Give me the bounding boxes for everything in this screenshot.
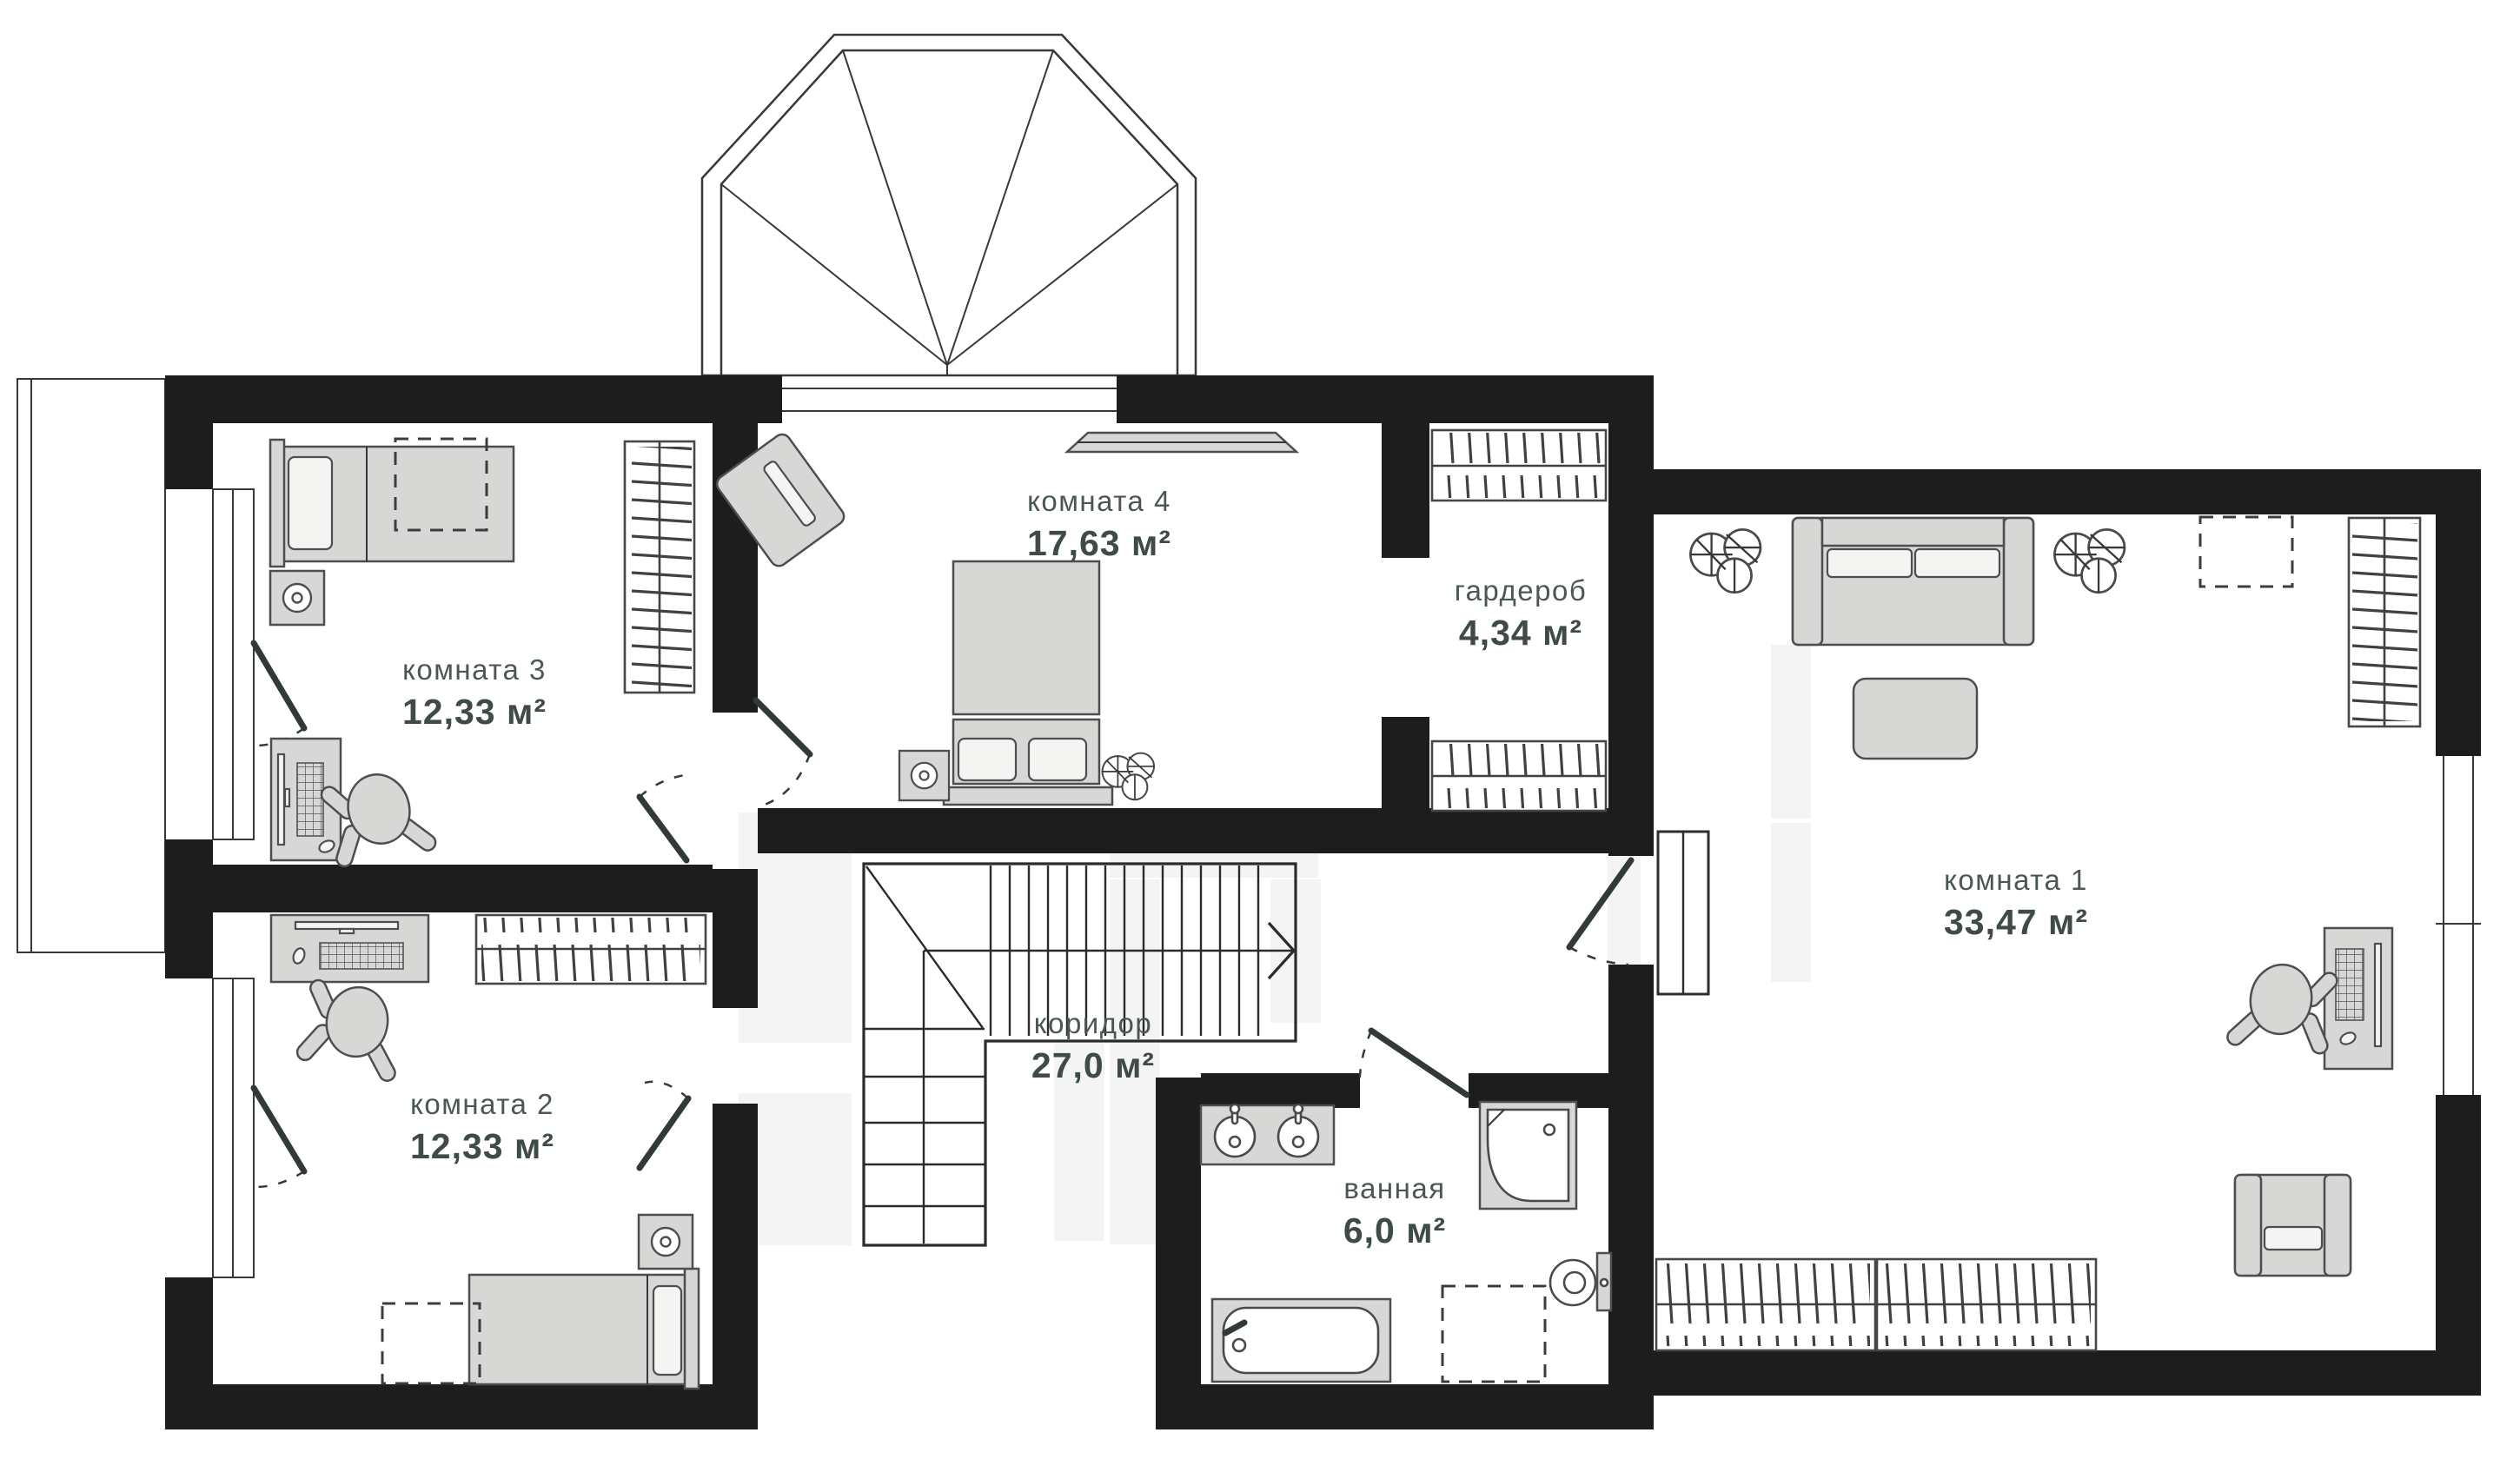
room-name: комната 3 <box>402 652 547 689</box>
plant-icon <box>2054 529 2125 592</box>
door-swing-icon <box>640 775 686 860</box>
room-area: 17,63 м² <box>1027 521 1171 567</box>
floor-plan: комната 4 17,63 м² гардероб 4,34 м² комн… <box>0 0 2520 1479</box>
room-area: 12,33 м² <box>402 689 547 735</box>
room-area: 27,0 м² <box>1031 1043 1155 1089</box>
double-bed-icon <box>944 561 1112 805</box>
single-bed-icon <box>270 439 514 567</box>
room-name: комната 4 <box>1027 483 1171 521</box>
office-chair-icon <box>291 975 412 1085</box>
sofa-icon <box>1793 518 2033 645</box>
desk-icon <box>2324 928 2392 1069</box>
door-swing-icon <box>254 1088 304 1187</box>
window-icon <box>213 489 254 839</box>
wall-niche-icon <box>1658 832 1708 994</box>
door-swing-icon <box>756 700 810 806</box>
room-name: гардероб <box>1455 573 1587 610</box>
double-sink-icon <box>1201 1104 1334 1164</box>
room-area: 12,33 м² <box>410 1124 554 1170</box>
door-swing-icon <box>254 643 304 746</box>
room-name: комната 2 <box>410 1086 554 1124</box>
coffee-table-icon <box>1854 679 1977 759</box>
armchair-icon <box>2235 1175 2351 1276</box>
bay-window <box>702 35 1196 375</box>
desk-icon <box>271 915 428 982</box>
room-label-komnata-4: комната 4 17,63 м² <box>1027 483 1171 567</box>
door-swing-icon <box>1360 1031 1467 1095</box>
door-swing-icon <box>640 1082 688 1168</box>
wardrobe-rail-icon <box>625 441 694 693</box>
window-icon <box>213 978 254 1277</box>
room-label-komnata-3: комната 3 12,33 м² <box>402 652 547 735</box>
wardrobe-rail-icon <box>1656 1259 1875 1350</box>
room-name: ванная <box>1343 1171 1446 1208</box>
nightstand-lamp-icon <box>639 1215 693 1269</box>
room-area: 33,47 м² <box>1944 899 2088 945</box>
room-label-komnata-2: комната 2 12,33 м² <box>410 1086 554 1170</box>
room-label-garderob: гардероб 4,34 м² <box>1455 573 1587 656</box>
room-area: 4,34 м² <box>1455 610 1587 656</box>
nightstand-lamp-icon <box>899 751 949 800</box>
room-name: комната 1 <box>1944 862 2088 899</box>
wardrobe-rail-icon <box>476 915 706 984</box>
balcony <box>17 379 165 952</box>
nightstand-lamp-icon <box>270 571 324 625</box>
floor-plan-canvas <box>0 0 2520 1479</box>
room-area: 6,0 м² <box>1343 1208 1446 1254</box>
room-label-komnata-1: комната 1 33,47 м² <box>1944 862 2088 945</box>
appliance-placeholder-dashed <box>2200 517 2292 587</box>
window-icon <box>782 388 1117 411</box>
wardrobe-rail-icon <box>1432 430 1606 501</box>
window-icon <box>2436 756 2481 1095</box>
single-bed-icon <box>382 1269 699 1389</box>
wardrobe-rail-icon <box>1432 741 1606 811</box>
appliance-placeholder-dashed <box>1442 1286 1545 1382</box>
room-name: коридор <box>1031 1005 1155 1043</box>
room-label-vannaya: ванная 6,0 м² <box>1343 1171 1446 1254</box>
plant-icon <box>1690 529 1761 592</box>
bathtub-icon <box>1212 1299 1390 1382</box>
room-label-koridor: коридор 27,0 м² <box>1031 1005 1155 1089</box>
wardrobe-rail-icon <box>1877 1259 2096 1350</box>
toilet-icon <box>1550 1253 1611 1310</box>
wardrobe-rail-icon <box>2349 518 2420 726</box>
shelf-icon <box>1067 433 1296 452</box>
shower-icon <box>1480 1102 1576 1209</box>
